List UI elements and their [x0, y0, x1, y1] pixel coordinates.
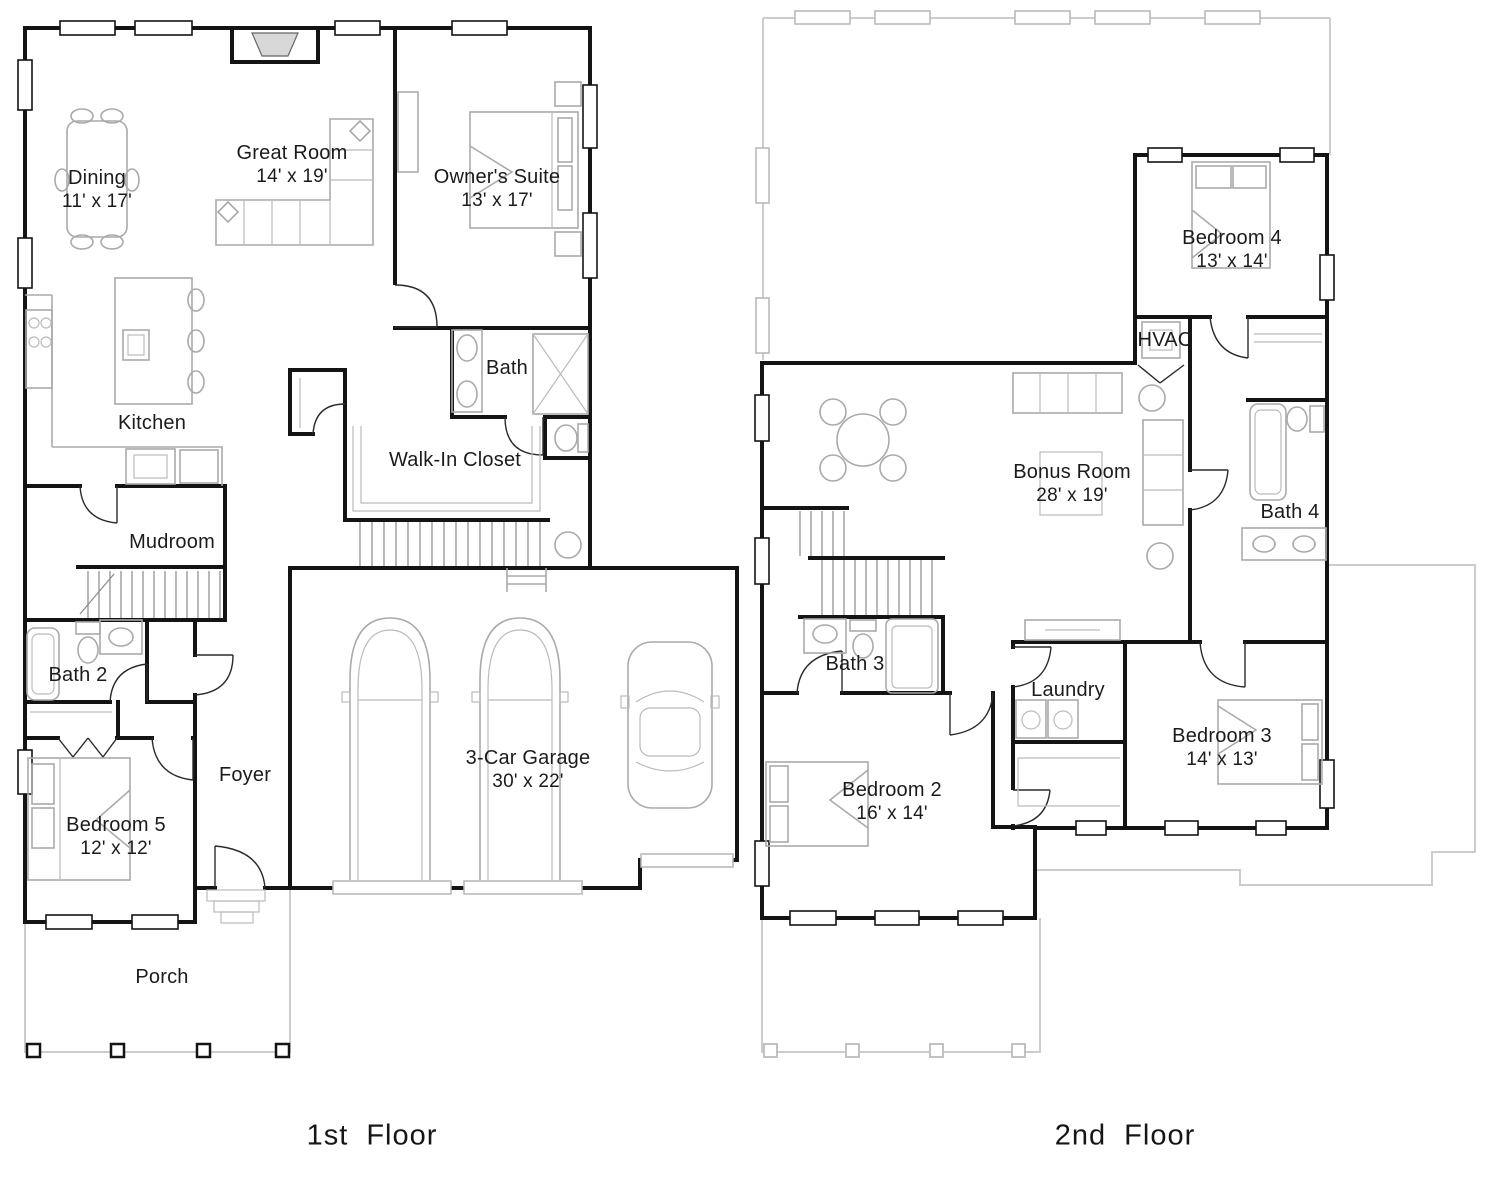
room-name: Mudroom: [129, 531, 215, 553]
room-label-laundry: Laundry: [1031, 679, 1105, 703]
room-dims: 13' x 17': [434, 190, 560, 212]
second-floor-plan: [755, 11, 1475, 1057]
room-label-bedroom-5: Bedroom 5 12' x 12': [66, 814, 166, 860]
room-dims: 11' x 17': [62, 191, 132, 213]
room-name: Great Room: [237, 142, 348, 164]
car-icon: [342, 618, 438, 880]
room-name: Dining: [68, 167, 126, 189]
room-label-great-room: Great Room 14' x 19': [237, 142, 348, 188]
room-name: Kitchen: [118, 412, 186, 434]
stairs-main-icon: [360, 522, 581, 592]
room-name: Bedroom 4: [1182, 227, 1282, 249]
ghost-outline: [756, 11, 1475, 1057]
room-name: Owner's Suite: [434, 166, 560, 188]
floor-caption-first: 1st Floor: [307, 1120, 438, 1153]
entry-steps-icon: [207, 890, 265, 923]
room-label-bedroom-2: Bedroom 2 16' x 14': [842, 779, 942, 825]
room-name: HVAC: [1138, 329, 1193, 351]
first-floor-doors: [80, 285, 543, 888]
room-label-bedroom-3: Bedroom 3 14' x 13': [1172, 725, 1272, 771]
room-name: Bedroom 3: [1172, 725, 1272, 747]
room-label-foyer: Foyer: [219, 764, 271, 788]
bath4-fixtures-icon: [1242, 404, 1326, 560]
room-name: Bath 3: [825, 653, 884, 675]
stairs-basement-icon: [80, 571, 220, 618]
room-name: 3-Car Garage: [466, 747, 591, 769]
room-label-bath-2: Bath 2: [48, 664, 107, 688]
room-label-three-car-garage: 3-Car Garage 30' x 22': [466, 747, 591, 793]
room-dims: 12' x 12': [66, 838, 166, 860]
floor-caption-second: 2nd Floor: [1055, 1120, 1196, 1153]
room-dims: 13' x 14': [1182, 251, 1282, 273]
stairs-upper-icon: [800, 511, 932, 615]
room-name: Bedroom 2: [842, 779, 942, 801]
room-dims: 30' x 22': [466, 771, 591, 793]
room-label-porch: Porch: [135, 966, 188, 990]
room-name: Bath 4: [1260, 501, 1319, 523]
room-label-bedroom-4: Bedroom 4 13' x 14': [1182, 227, 1282, 273]
room-label-hvac: HVAC: [1138, 329, 1193, 353]
closet-shelf-icon: [1254, 334, 1322, 342]
room-name: Walk-In Closet: [389, 449, 521, 471]
room-label-walk-in-closet: Walk-In Closet: [389, 449, 521, 473]
wic-shelving-icon: [300, 378, 540, 511]
room-dims: 14' x 19': [237, 166, 348, 188]
room-name: Bonus Room: [1013, 461, 1131, 483]
first-floor-walls: [25, 28, 737, 922]
room-label-bath: Bath: [486, 357, 528, 381]
room-name: Foyer: [219, 764, 271, 786]
bath2-fixtures-icon: [27, 620, 142, 700]
room-name: Bedroom 5: [66, 814, 166, 836]
floorplan-sheet: Dining 11' x 17' Great Room 14' x 19' Ow…: [0, 0, 1500, 1182]
room-label-bath-3: Bath 3: [825, 653, 884, 677]
floorplan-drawing: [0, 0, 1500, 1182]
kitchen-icons: [25, 278, 222, 486]
room-label-bath-4: Bath 4: [1260, 501, 1319, 525]
room-label-mudroom: Mudroom: [129, 531, 215, 555]
room-label-bonus-room: Bonus Room 28' x 19': [1013, 461, 1131, 507]
room-label-owners-suite: Owner's Suite 13' x 17': [434, 166, 560, 212]
fireplace-icon: [232, 28, 318, 62]
room-dims: 14' x 13': [1172, 749, 1272, 771]
car-top-icon: [621, 642, 719, 808]
bath-fixtures-icon: [452, 330, 588, 452]
room-label-kitchen: Kitchen: [118, 412, 186, 436]
room-dims: 28' x 19': [1013, 485, 1131, 507]
room-label-dining: Dining 11' x 17': [62, 167, 132, 213]
room-dims: 16' x 14': [842, 803, 942, 825]
room-name: Bath 2: [48, 664, 107, 686]
room-name: Bath: [486, 357, 528, 379]
room-name: Laundry: [1031, 679, 1105, 701]
room-name: Porch: [135, 966, 188, 988]
